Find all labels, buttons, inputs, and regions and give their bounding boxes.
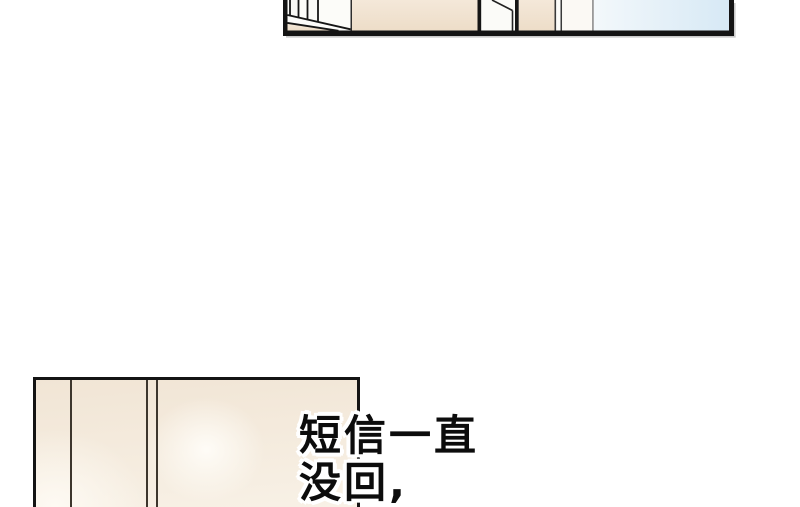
window-frame-column bbox=[562, 0, 591, 31]
panel-shadow bbox=[734, 3, 736, 38]
narration-line-1: 短信一直 bbox=[299, 412, 479, 459]
panel-border-right bbox=[729, 0, 734, 36]
window-edge-line bbox=[592, 0, 594, 31]
panel-shadow bbox=[286, 36, 736, 38]
window-sky bbox=[594, 0, 729, 31]
doorway bbox=[478, 0, 519, 31]
door-frame-line bbox=[478, 0, 482, 31]
wall-seam-line bbox=[555, 0, 557, 31]
hallway-wall bbox=[352, 0, 478, 31]
comic-page: 短信一直 没回, bbox=[0, 0, 800, 500]
top-panel bbox=[283, 0, 736, 39]
wall-section bbox=[519, 0, 555, 31]
wall-seam-line bbox=[146, 380, 148, 507]
top-panel-art bbox=[283, 0, 736, 39]
narration-line-2: 没回, bbox=[299, 459, 479, 506]
narration-text: 短信一直 没回, bbox=[299, 412, 479, 506]
door-panel bbox=[481, 0, 515, 31]
wall-seam-line bbox=[561, 0, 563, 31]
railing-post bbox=[308, 0, 319, 22]
wall-seam-line bbox=[156, 380, 158, 507]
door-frame-line bbox=[515, 0, 519, 31]
wall-seam-line bbox=[70, 380, 72, 507]
panel-border-bottom bbox=[283, 31, 734, 37]
